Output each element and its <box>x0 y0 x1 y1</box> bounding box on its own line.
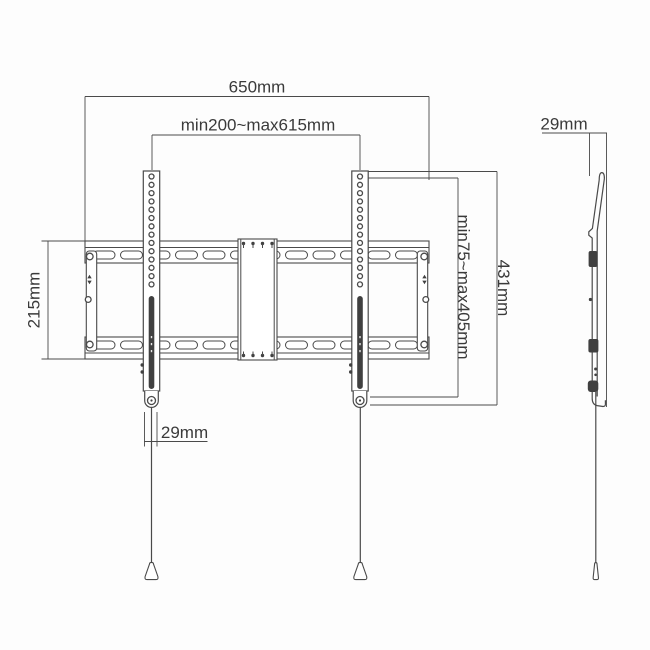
dim-bracket-height-label: 431mm <box>494 260 513 317</box>
center-plate <box>238 239 277 360</box>
cord-left <box>145 408 158 580</box>
side-view: 29mm <box>540 115 607 580</box>
dim-arm-width: 29mm <box>144 412 208 447</box>
dim-total-width-label: 650mm <box>229 78 286 97</box>
side-bottom-lock-hardware <box>588 339 598 353</box>
dim-total-width: 650mm <box>85 78 429 242</box>
front-view: 650mm min200~max615mm 215mm 29mm min75~m… <box>25 78 514 580</box>
side-cord <box>593 392 598 580</box>
dim-bracket-height: 431mm <box>368 172 513 406</box>
dim-hole-width-range: min200~max615mm <box>152 116 360 171</box>
right-end-cap <box>417 251 428 351</box>
drawing-svg: 650mm min200~max615mm 215mm 29mm min75~m… <box>0 0 650 650</box>
dim-arm-width-label: 29mm <box>161 423 208 442</box>
vesa-arm-right <box>349 171 368 407</box>
left-end-cap <box>85 251 96 351</box>
side-top-hook-hardware <box>589 251 598 267</box>
dim-hole-width-range-label: min200~max615mm <box>181 116 336 135</box>
vesa-arm-left <box>141 171 160 407</box>
dim-hole-height-range-label: min75~max405mm <box>454 214 473 359</box>
dim-plate-height-label: 215mm <box>25 272 44 329</box>
cord-right <box>354 408 367 580</box>
side-bracket-profile <box>588 173 606 407</box>
dim-depth-label: 29mm <box>540 115 587 134</box>
technical-drawing: 650mm min200~max615mm 215mm 29mm min75~m… <box>0 0 650 650</box>
dim-plate-height: 215mm <box>25 241 86 359</box>
side-cord-lock <box>588 381 599 393</box>
